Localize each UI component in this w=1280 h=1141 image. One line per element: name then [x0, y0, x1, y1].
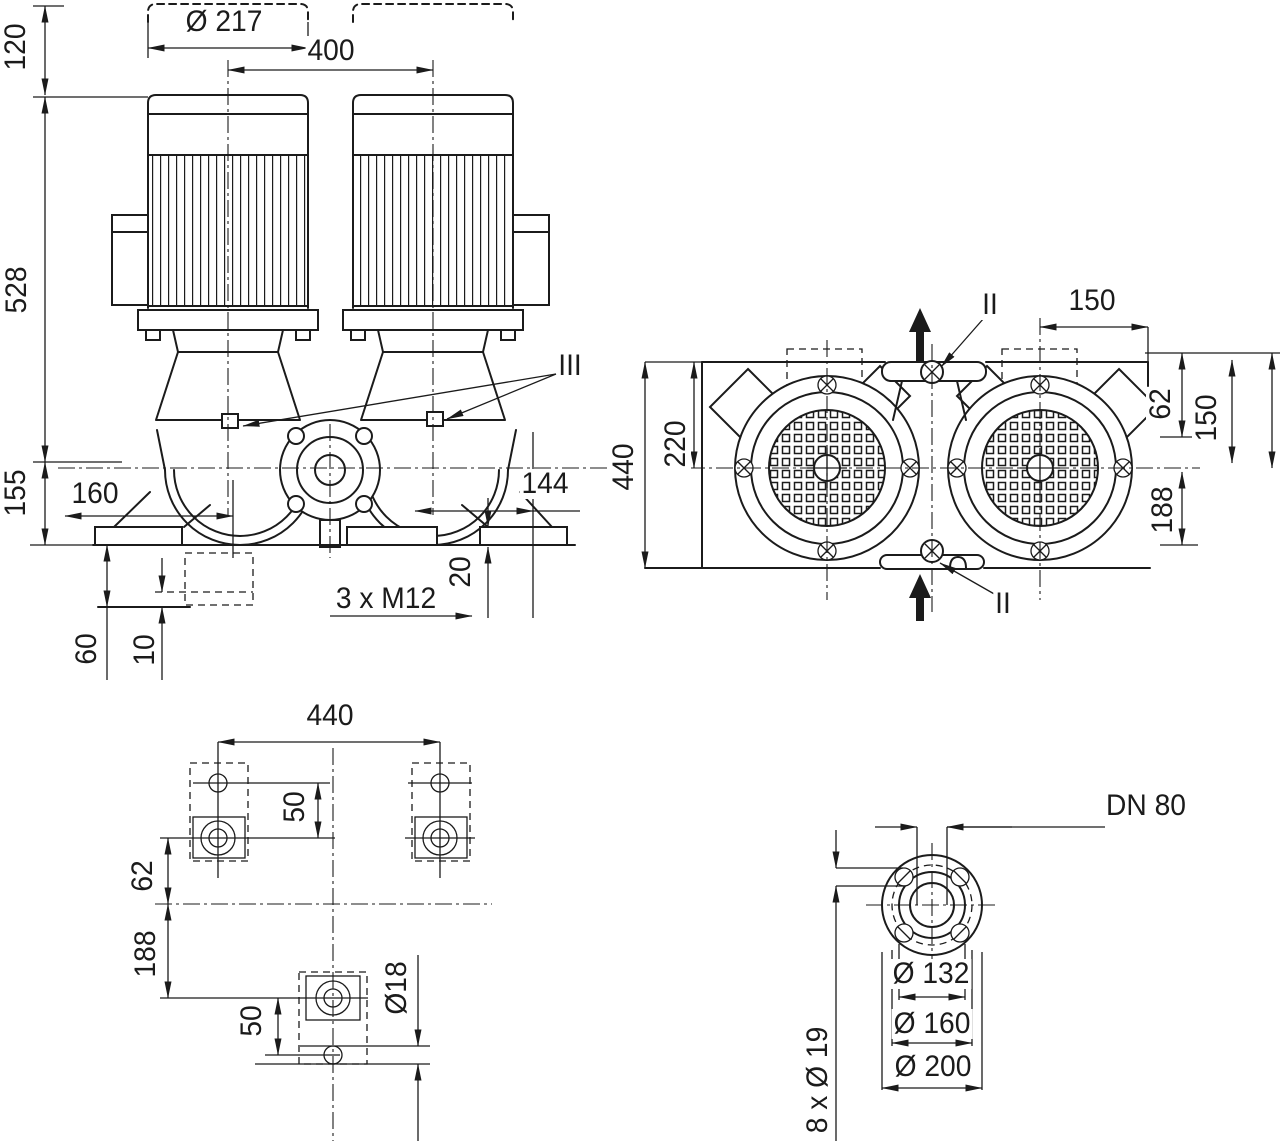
label-anchor-bolts: 3 x M12 — [334, 584, 438, 614]
dim-raised-face: Ø 132 — [891, 959, 972, 989]
drawing-canvas — [0, 0, 1280, 1141]
dim-axis-to-bolt-row: 188 — [131, 929, 161, 980]
dim-hole-dia: Ø18 — [382, 959, 412, 1016]
dim-motor-dia: Ø 217 — [184, 7, 265, 37]
dim-overall-width: 440 — [609, 442, 639, 493]
dim-foundation-depth: 60 — [72, 631, 102, 666]
plan-view — [645, 308, 1280, 621]
dim-edge-to-axis: 62 — [1146, 386, 1176, 421]
dim-port-left: 160 — [70, 479, 121, 509]
dim-outer-dia: Ø 200 — [893, 1052, 974, 1082]
technical-drawing-page: 120 Ø 217 400 528 155 160 144 20 3 x M12… — [0, 0, 1280, 1141]
dim-port-offset-top: 150 — [1067, 286, 1118, 316]
dim-bolt-spacing: 440 — [305, 701, 356, 731]
dim-half-width: 220 — [661, 419, 691, 470]
dim-bolt-holes: 8 x Ø 19 — [803, 1025, 833, 1135]
dim-axis-offset: 62 — [128, 858, 158, 893]
dim-motor-top-ext: 120 — [1, 22, 31, 73]
dim-axis-to-bolt: 188 — [1148, 485, 1178, 536]
dim-axis-to-base: 155 — [1, 468, 31, 519]
front-elevation-view — [30, 4, 612, 680]
dim-grout-layer: 10 — [130, 632, 160, 667]
label-nominal-dn: DN 80 — [1104, 791, 1188, 821]
label-vent-II-bottom: II — [993, 589, 1012, 619]
dim-axis-to-top: 528 — [2, 265, 32, 316]
dim-motor-spacing: 400 — [306, 36, 357, 66]
dim-bolt-circle: Ø 160 — [892, 1009, 973, 1039]
dim-pad-height: 20 — [446, 554, 476, 589]
dim-axis-span: 150 — [1192, 393, 1222, 444]
dim-hole-pitch-top: 50 — [280, 789, 310, 824]
label-vent-II-top: II — [980, 290, 999, 320]
foundation-plan-view — [155, 742, 492, 1141]
dim-port-right: 144 — [520, 469, 571, 499]
dim-hole-pitch-bottom: 50 — [237, 1003, 267, 1038]
label-detail-III: III — [556, 351, 583, 381]
